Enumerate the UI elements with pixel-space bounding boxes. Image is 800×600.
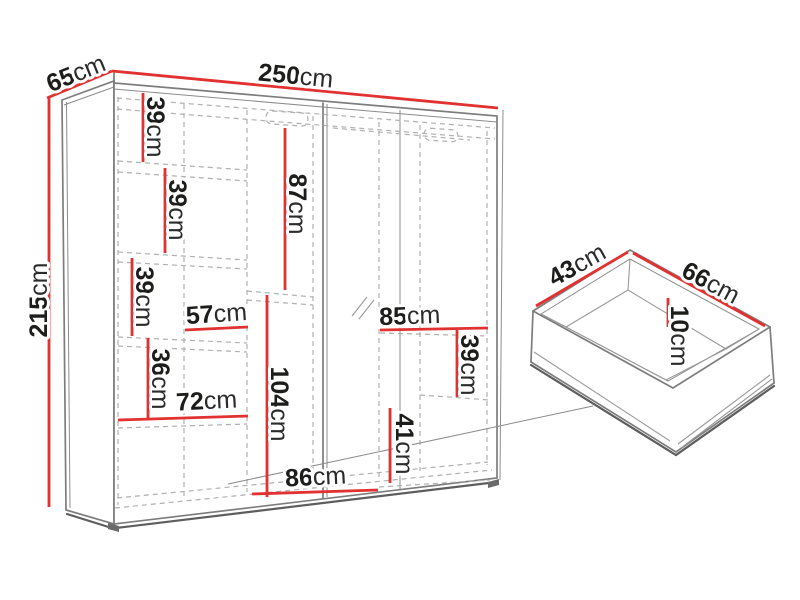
shelf-39-label-2: 39cm (163, 179, 191, 240)
right-39-label: 39cm (455, 334, 483, 395)
width-72-label: 72cm (175, 385, 238, 416)
drawer-height-label: 10cm (665, 305, 693, 366)
diagram-svg: 65cm 250cm 215cm 39cm 39cm 39cm 36cm 57c… (0, 0, 800, 600)
width-86-label: 86cm (284, 461, 347, 492)
middle-87-label: 87cm (283, 173, 311, 234)
furniture-dimension-diagram: 65cm 250cm 215cm 39cm 39cm 39cm 36cm 57c… (0, 0, 800, 600)
shelf-36-label: 36cm (146, 348, 174, 409)
width-57-label: 57cm (185, 298, 248, 330)
wardrobe-right-edge (500, 110, 503, 480)
right-41-label: 41cm (390, 413, 418, 474)
middle-104-label: 104cm (265, 366, 293, 441)
shelf-39-label-3: 39cm (130, 266, 158, 327)
width-85-label: 85cm (379, 301, 441, 331)
shelf-39-label-1: 39cm (141, 96, 169, 157)
height-label: 215cm (25, 262, 53, 337)
width-label: 250cm (257, 59, 334, 94)
